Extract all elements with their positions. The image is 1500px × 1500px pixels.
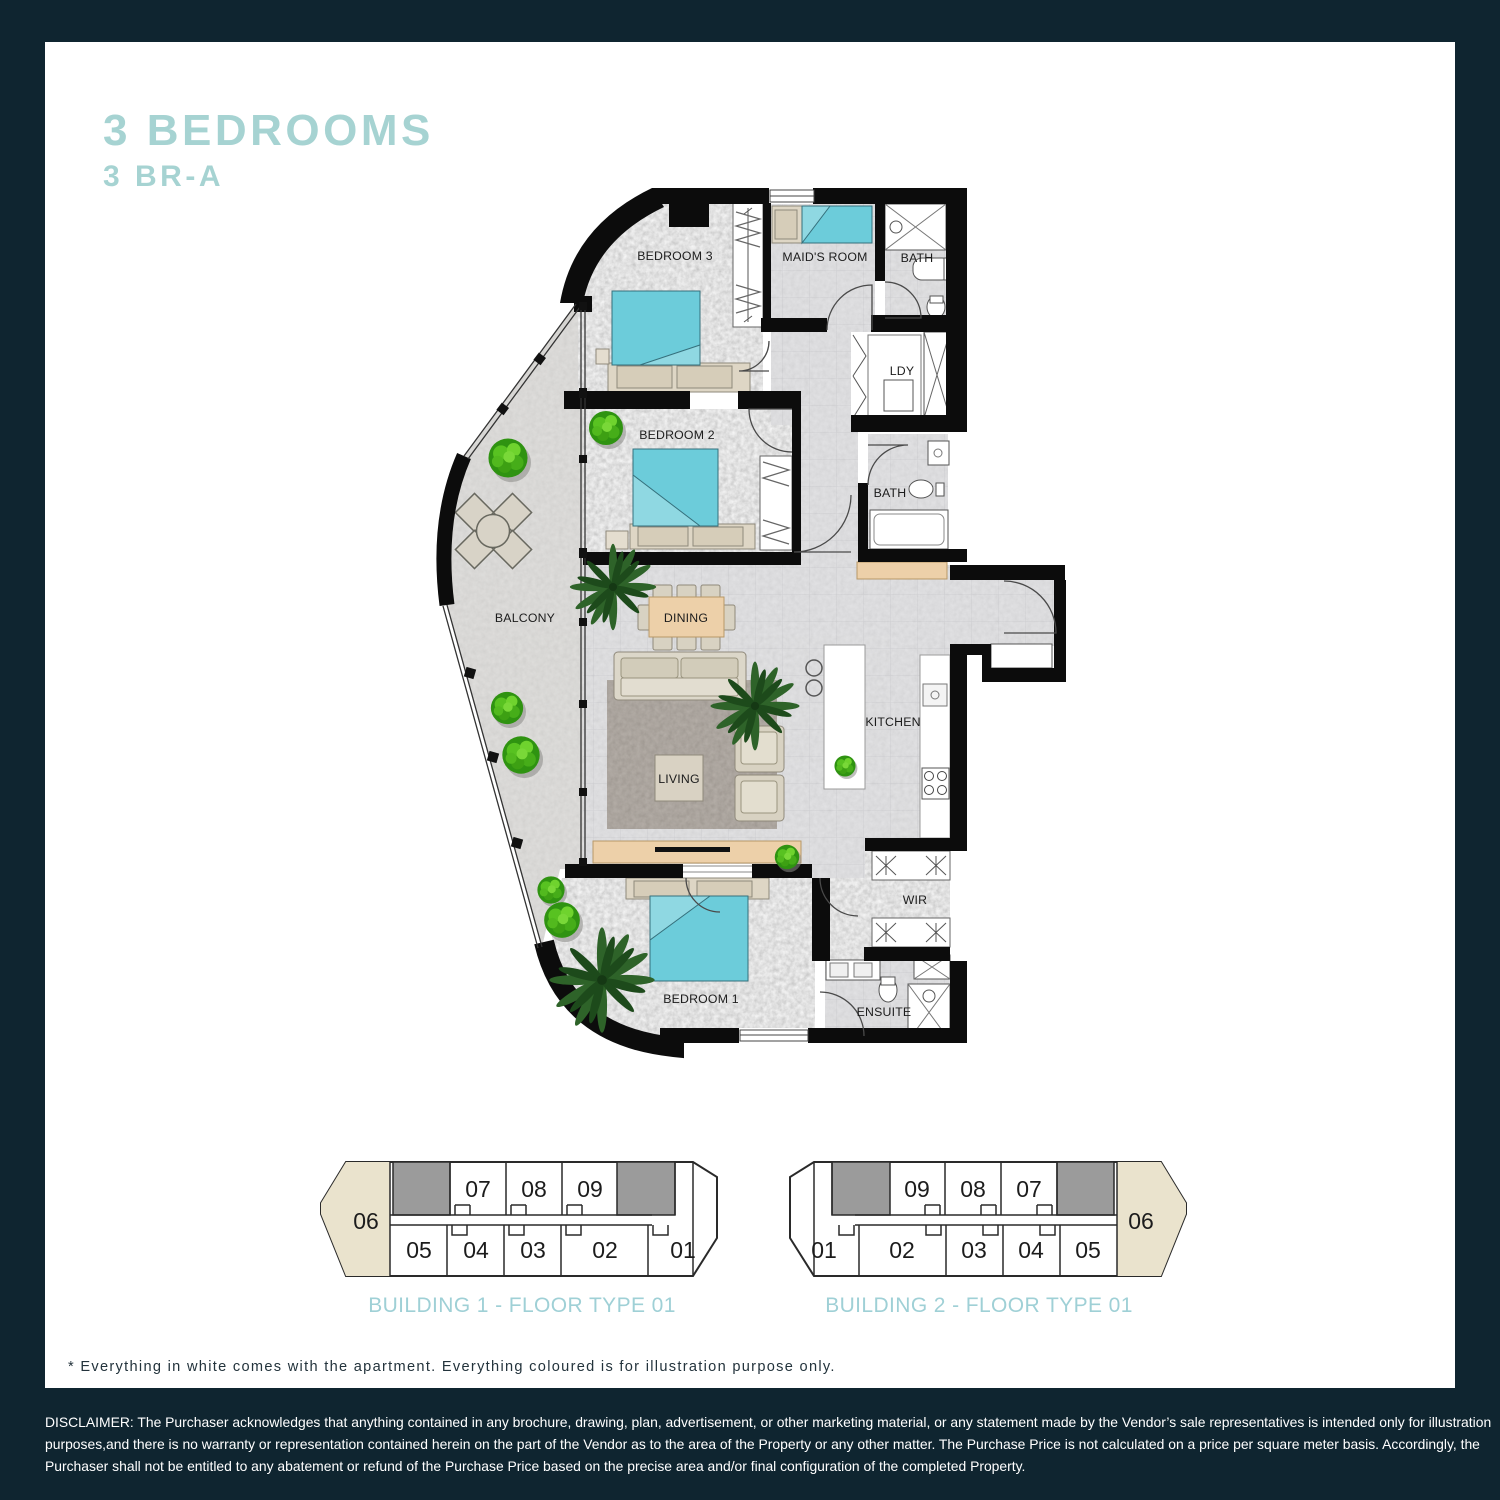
svg-text:DINING: DINING xyxy=(664,611,708,625)
svg-text:3 BEDROOMS: 3 BEDROOMS xyxy=(103,106,434,155)
svg-text:purposes,and there is no warra: purposes,and there is no warranty or rep… xyxy=(45,1436,1480,1452)
svg-text:09: 09 xyxy=(577,1176,603,1202)
svg-text:BATH: BATH xyxy=(874,486,907,500)
svg-text:* Everything in white comes wi: * Everything in white comes with the apa… xyxy=(68,1359,836,1375)
svg-text:09: 09 xyxy=(904,1176,930,1202)
svg-text:04: 04 xyxy=(1018,1237,1044,1263)
svg-text:DISCLAIMER: The Purchaser ackn: DISCLAIMER: The Purchaser acknowledges t… xyxy=(45,1414,1491,1430)
svg-text:ENSUITE: ENSUITE xyxy=(857,1005,912,1019)
svg-text:03: 03 xyxy=(961,1237,987,1263)
svg-text:BEDROOM 2: BEDROOM 2 xyxy=(639,428,715,442)
svg-text:LDY: LDY xyxy=(890,364,915,378)
svg-text:05: 05 xyxy=(406,1237,432,1263)
svg-text:MAID'S ROOM: MAID'S ROOM xyxy=(782,250,867,264)
svg-text:07: 07 xyxy=(1016,1176,1042,1202)
svg-text:03: 03 xyxy=(520,1237,546,1263)
svg-text:01: 01 xyxy=(670,1237,696,1263)
svg-text:KITCHEN: KITCHEN xyxy=(865,715,920,729)
svg-text:07: 07 xyxy=(465,1176,491,1202)
svg-text:BUILDING 1 - FLOOR TYPE 01: BUILDING 1 - FLOOR TYPE 01 xyxy=(368,1294,676,1317)
svg-text:05: 05 xyxy=(1075,1237,1101,1263)
svg-text:04: 04 xyxy=(463,1237,489,1263)
svg-text:BEDROOM 1: BEDROOM 1 xyxy=(663,992,739,1006)
svg-text:WIR: WIR xyxy=(903,893,928,907)
svg-text:08: 08 xyxy=(960,1176,986,1202)
svg-text:01: 01 xyxy=(811,1237,837,1263)
svg-text:BATH: BATH xyxy=(901,251,934,265)
svg-text:BALCONY: BALCONY xyxy=(495,611,555,625)
svg-text:02: 02 xyxy=(889,1237,915,1263)
svg-text:BUILDING 2 - FLOOR TYPE 01: BUILDING 2 - FLOOR TYPE 01 xyxy=(825,1294,1133,1317)
svg-text:3 BR-A: 3 BR-A xyxy=(103,160,224,193)
svg-text:08: 08 xyxy=(521,1176,547,1202)
svg-text:Purchaser shall not be entitle: Purchaser shall not be entitled to any a… xyxy=(45,1458,1025,1474)
svg-text:06: 06 xyxy=(353,1208,379,1234)
svg-text:LIVING: LIVING xyxy=(658,772,700,786)
svg-text:BEDROOM 3: BEDROOM 3 xyxy=(637,249,713,263)
svg-text:06: 06 xyxy=(1128,1208,1154,1234)
svg-text:02: 02 xyxy=(592,1237,618,1263)
